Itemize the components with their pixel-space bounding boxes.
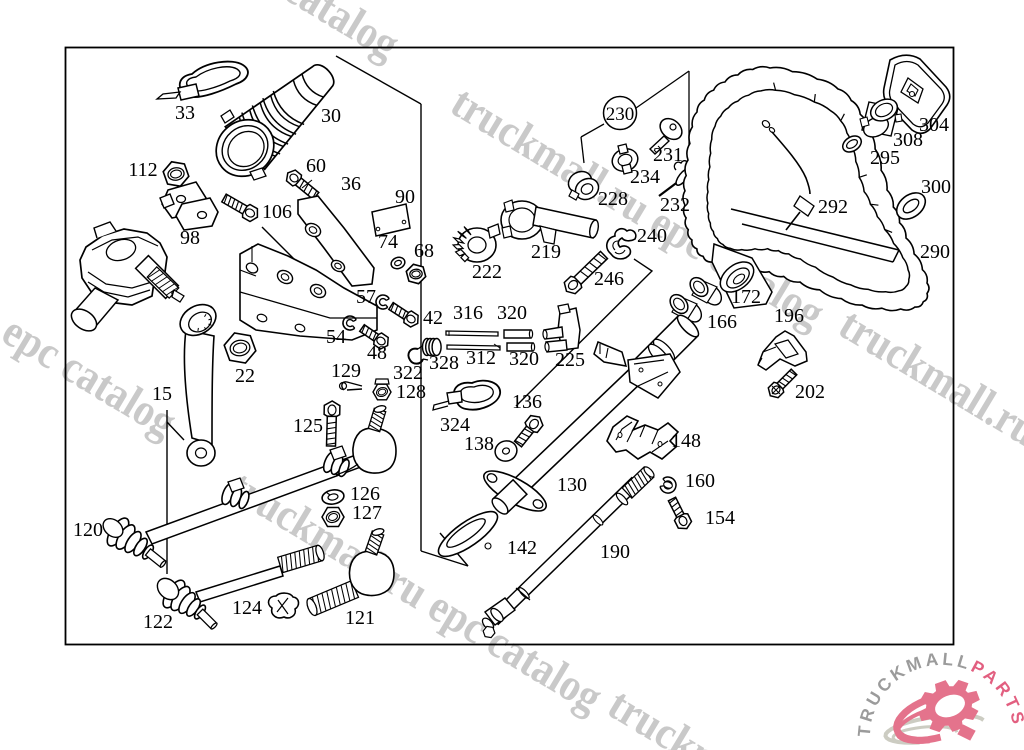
svg-text:231: 231	[653, 144, 683, 166]
svg-text:228: 228	[598, 188, 628, 210]
svg-text:304: 304	[919, 114, 949, 136]
svg-text:74: 74	[378, 231, 398, 253]
svg-text:222: 222	[472, 261, 502, 283]
svg-text:112: 112	[128, 159, 157, 181]
svg-text:312: 312	[466, 347, 496, 369]
svg-text:106: 106	[262, 201, 292, 223]
svg-text:42: 42	[423, 307, 443, 329]
svg-text:234: 234	[630, 166, 660, 188]
svg-text:30: 30	[321, 105, 341, 127]
svg-text:190: 190	[600, 541, 630, 563]
svg-text:54: 54	[326, 326, 346, 348]
svg-text:122: 122	[143, 611, 173, 633]
svg-text:246: 246	[594, 268, 624, 290]
svg-text:121: 121	[345, 607, 375, 629]
svg-text:124: 124	[232, 597, 262, 619]
svg-text:truckmall.ru epc catalog: truckmall.ru epc catalog	[18, 0, 409, 69]
svg-text:166: 166	[707, 311, 737, 333]
svg-text:142: 142	[507, 537, 537, 559]
svg-text:172: 172	[731, 286, 761, 308]
svg-text:128: 128	[396, 381, 426, 403]
svg-text:33: 33	[175, 102, 195, 124]
svg-text:68: 68	[414, 240, 434, 262]
svg-text:232: 232	[660, 194, 690, 216]
svg-text:230: 230	[606, 104, 635, 125]
svg-text:90: 90	[395, 186, 415, 208]
svg-text:57: 57	[356, 286, 376, 308]
svg-text:202: 202	[795, 381, 825, 403]
svg-text:148: 148	[671, 430, 701, 452]
svg-text:127: 127	[352, 502, 382, 524]
svg-text:15: 15	[152, 383, 172, 405]
svg-text:219: 219	[531, 241, 561, 263]
svg-text:290: 290	[920, 241, 950, 263]
svg-text:48: 48	[367, 342, 387, 364]
svg-text:316: 316	[453, 302, 483, 324]
svg-text:160: 160	[685, 470, 715, 492]
svg-text:300: 300	[921, 176, 951, 198]
svg-text:295: 295	[870, 147, 900, 169]
svg-text:120: 120	[73, 519, 103, 541]
svg-text:36: 36	[341, 173, 361, 195]
svg-text:22: 22	[235, 365, 255, 387]
svg-text:320: 320	[509, 348, 539, 370]
svg-text:154: 154	[705, 507, 735, 529]
svg-text:240: 240	[637, 225, 667, 247]
svg-text:60: 60	[306, 155, 326, 177]
svg-text:320: 320	[497, 302, 527, 324]
svg-text:truckmall.ru epc catalog: truckmall.ru epc catalog	[831, 298, 1024, 561]
svg-text:125: 125	[293, 415, 323, 437]
svg-text:129: 129	[331, 360, 361, 382]
svg-text:328: 328	[429, 352, 459, 374]
svg-text:196: 196	[774, 305, 804, 327]
svg-text:292: 292	[818, 196, 848, 218]
svg-text:98: 98	[180, 227, 200, 249]
svg-text:truckmall.ru epc catalog: truckmall.ru epc catalog	[221, 460, 612, 723]
svg-text:138: 138	[464, 433, 494, 455]
svg-text:225: 225	[555, 349, 585, 371]
svg-text:130: 130	[557, 474, 587, 496]
svg-text:136: 136	[512, 391, 542, 413]
